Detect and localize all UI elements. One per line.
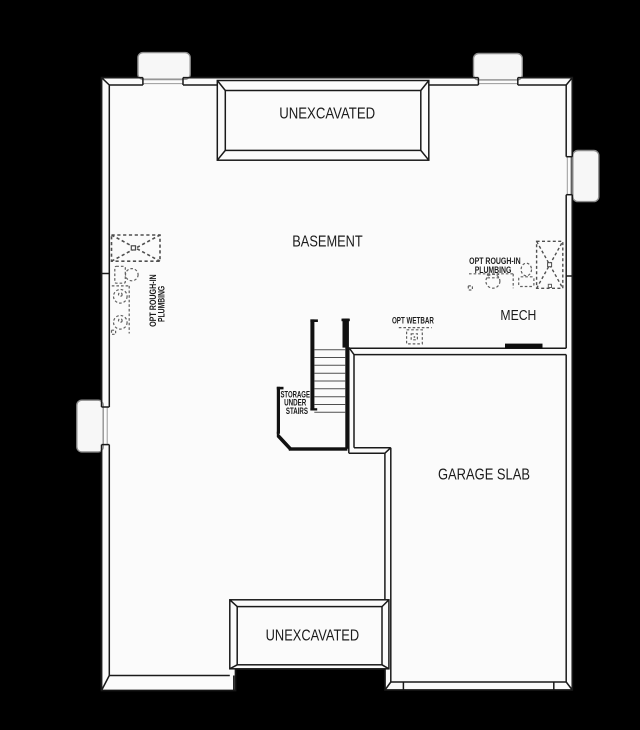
svg-text:GARAGE SLAB: GARAGE SLAB — [438, 467, 530, 484]
svg-text:UNEXCAVATED: UNEXCAVATED — [266, 627, 360, 644]
svg-text:OPT WETBAR: OPT WETBAR — [392, 315, 434, 325]
svg-text:STAIRS: STAIRS — [286, 406, 308, 417]
svg-text:UNEXCAVATED: UNEXCAVATED — [279, 106, 375, 123]
svg-text:MECH: MECH — [500, 308, 536, 324]
svg-text:BASEMENT: BASEMENT — [292, 234, 363, 251]
svg-text:PLUMBING: PLUMBING — [156, 286, 166, 322]
